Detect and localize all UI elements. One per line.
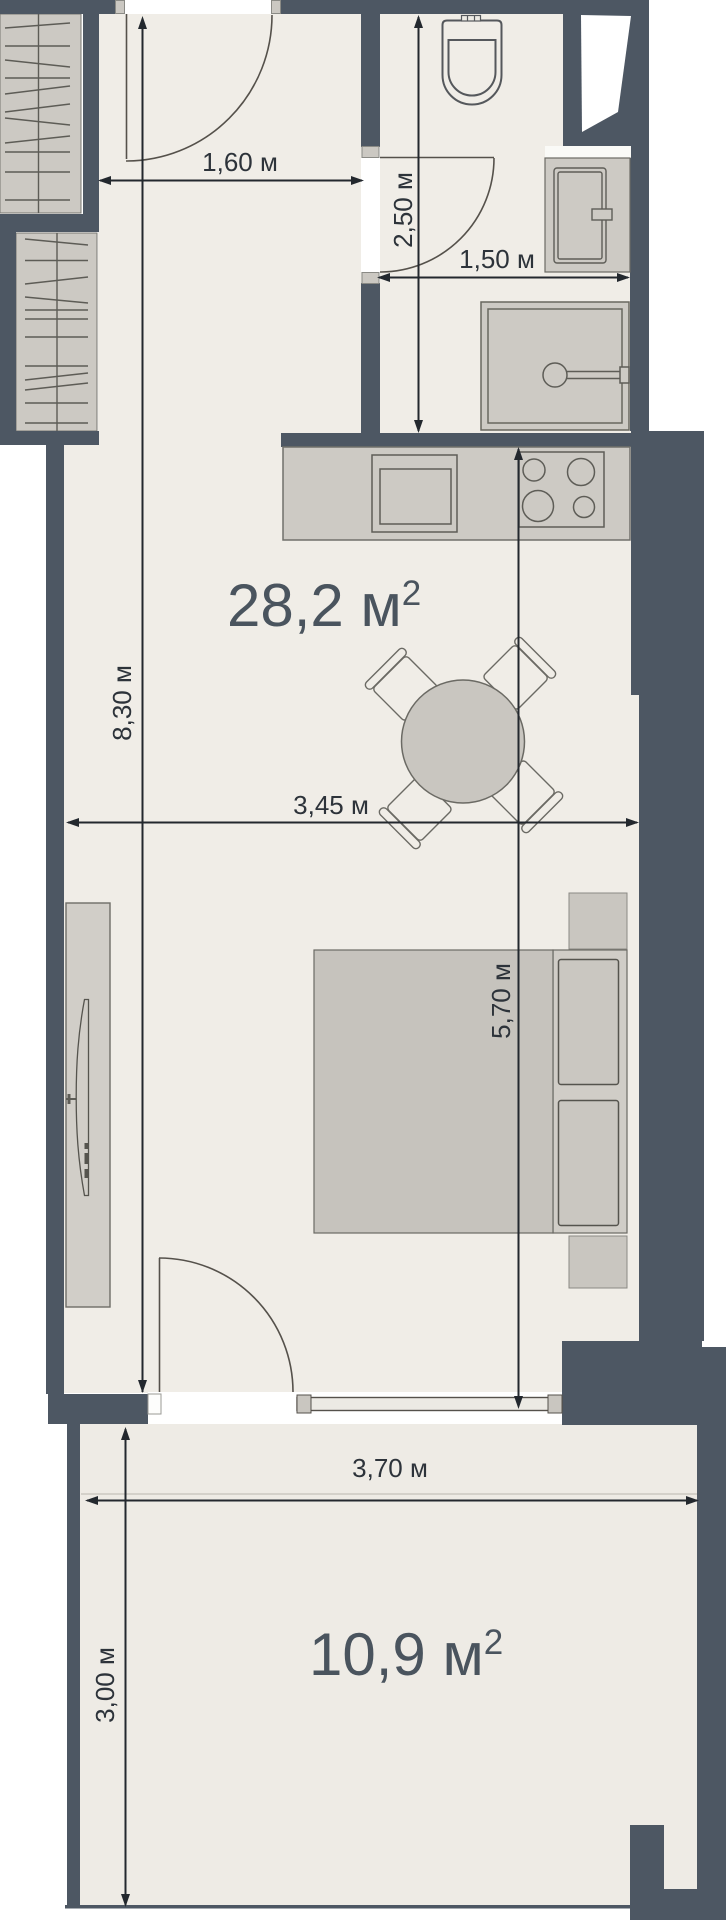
- svg-text:28,2 м2: 28,2 м2: [227, 572, 421, 639]
- svg-text:3,00 м: 3,00 м: [90, 1647, 120, 1723]
- svg-text:2,50 м: 2,50 м: [388, 172, 418, 248]
- svg-text:10,9 м2: 10,9 м2: [309, 1621, 503, 1688]
- svg-text:3,70 м: 3,70 м: [352, 1453, 428, 1483]
- svg-text:8,30 м: 8,30 м: [107, 665, 137, 741]
- svg-text:3,45 м: 3,45 м: [293, 790, 369, 820]
- svg-text:5,70 м: 5,70 м: [486, 963, 516, 1039]
- svg-text:1,60 м: 1,60 м: [202, 147, 278, 177]
- svg-text:1,50 м: 1,50 м: [459, 244, 535, 274]
